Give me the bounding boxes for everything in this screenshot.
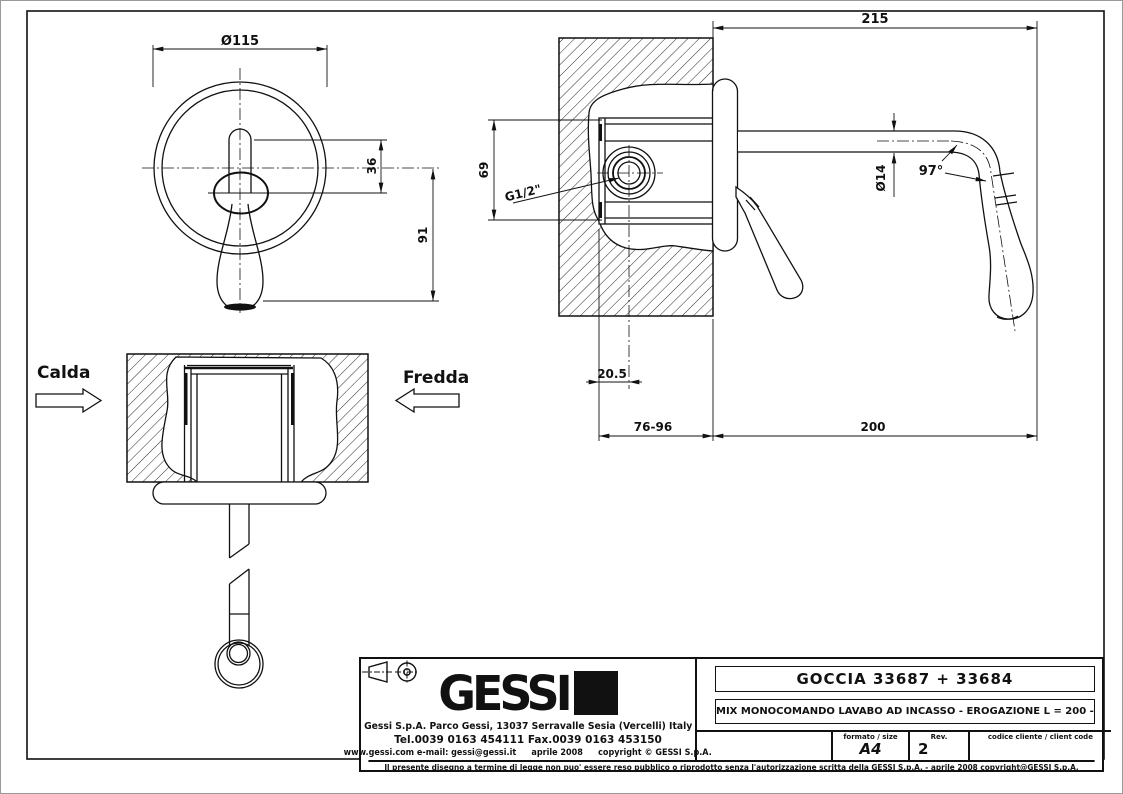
first-angle-projection-icon [361,659,425,685]
drawing-info-panel: GOCCIA 33687 + 33684 MIX MONOCOMANDO LAV… [697,659,1111,760]
legal-disclaimer: Il presente disegno a termine di legge n… [368,760,1094,774]
dim-spout-diameter: Ø14 [874,165,888,192]
product-description: MIX MONOCOMANDO LAVABO AD INCASSO - EROG… [715,699,1095,724]
title-block: GESSI Gessi S.p.A. Parco Gessi, 13037 Se… [359,657,1104,772]
label-hot: Calda [37,363,90,383]
gessi-logo: GESSI [438,661,618,717]
escutcheon-side [713,79,738,251]
top-view [36,354,459,688]
projection-symbol-cell [697,732,831,760]
dim-overall-projection: 215 [861,12,888,27]
front-view [142,45,439,313]
dim-spout-angle: 97° [919,164,944,179]
company-phone: Tel.0039 0163 454111 Fax.0039 0163 45315… [394,734,662,746]
company-web-line: www.gessi.com e-mail: gessi@gessi.it apr… [344,748,712,758]
client-code-cell: codice cliente / client code [968,732,1111,760]
format-cell: formato / size A4 [831,732,908,760]
gessi-logo-square-icon [574,671,618,715]
dim-front-length: 91 [416,227,430,244]
handle-end-bulb [215,640,263,688]
dim-front-length-lines [263,169,439,301]
dim-body-height: 69 [477,162,491,179]
dim-front-diameter: Ø115 [221,34,259,49]
title-block-main: GESSI Gessi S.p.A. Parco Gessi, 13037 Se… [361,659,1102,760]
dim-front-diameter-lines [153,45,327,87]
valve-body [599,118,713,224]
cold-flow-arrow [396,389,459,412]
title-block-bottom-row: formato / size A4 Rev. 2 codice cliente … [697,730,1111,760]
dim-embed-range: 76-96 [634,420,672,434]
product-title: GOCCIA 33687 + 33684 [715,666,1095,692]
escutcheon-top [153,482,326,504]
handle-lever-side [736,187,803,299]
copyright-note: copyright © GESSI S.p.A. [598,748,712,758]
technical-drawing-sheet: Ø115 36 91 [0,0,1123,794]
dim-spout-reach: 200 [860,420,885,434]
side-view [488,21,1037,441]
handle-stem-top [230,504,250,645]
drawing-date: aprile 2008 [532,748,584,758]
revision-value: 2 [910,741,968,757]
company-web: www.gessi.com e-mail: gessi@gessi.it [344,748,517,758]
hot-flow-arrow [36,389,101,412]
product-boxes: GOCCIA 33687 + 33684 MIX MONOCOMANDO LAV… [697,659,1111,730]
label-cold: Fredda [403,368,469,388]
dim-front-offset: 36 [365,158,379,175]
dim-inlet-depth: 20.5 [597,367,627,381]
dim-front-offset-lines [208,140,387,193]
revision-cell: Rev. 2 [908,732,968,760]
gessi-logo-text: GESSI [438,668,569,718]
company-address: Gessi S.p.A. Parco Gessi, 13037 Serraval… [364,721,692,732]
client-code-label: codice cliente / client code [970,733,1111,741]
format-value: A4 [833,741,908,757]
